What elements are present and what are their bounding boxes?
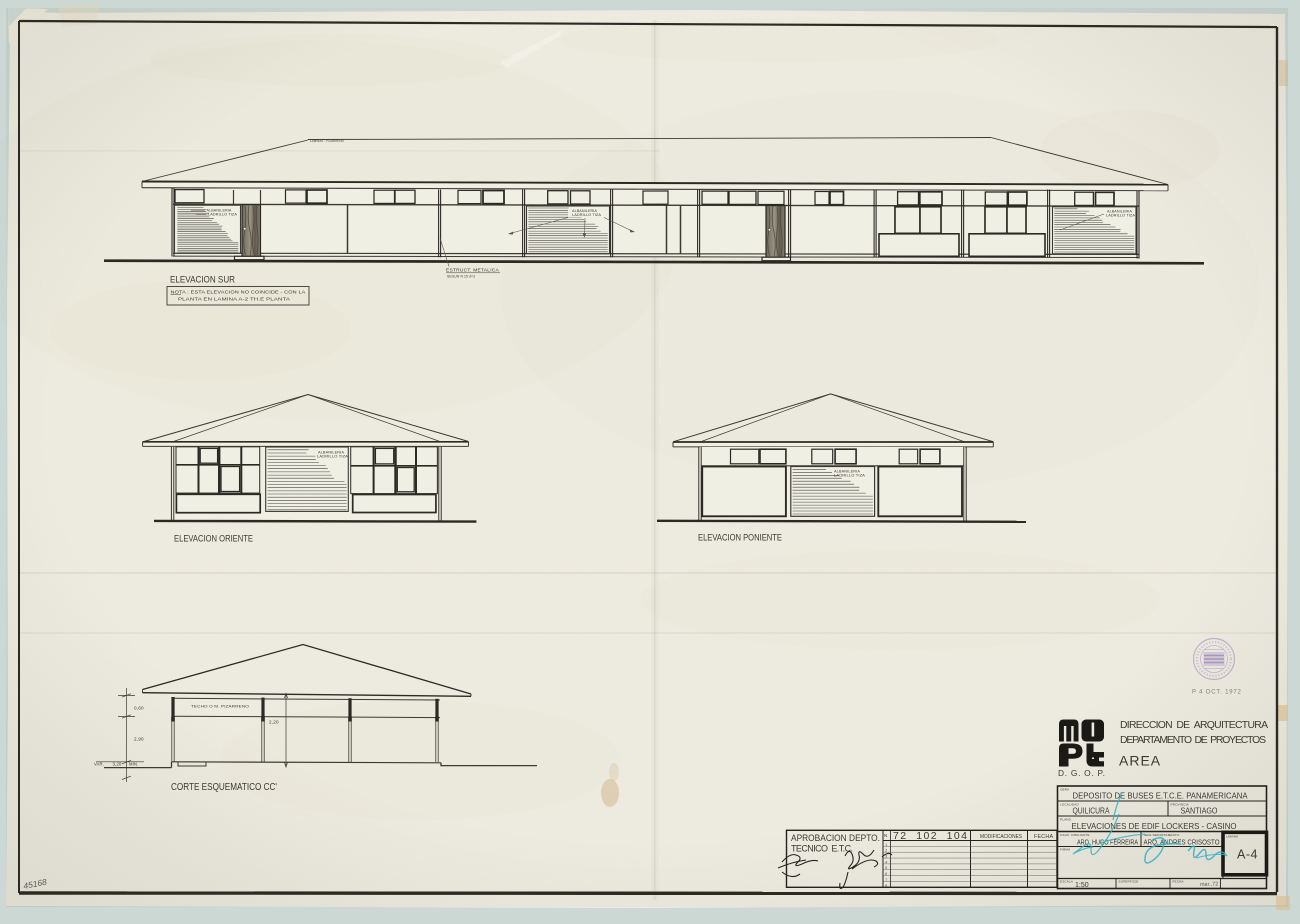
svg-text:SANTIAGO: SANTIAGO <box>1181 807 1218 816</box>
svg-text:7: 7 <box>885 878 887 882</box>
svg-text:TECHO O M. PIZARRENO: TECHO O M. PIZARRENO <box>191 705 249 709</box>
svg-text:ELEVACIONES DE EDIF LOCKERS -: ELEVACIONES DE EDIF LOCKERS - CASINO <box>1072 822 1237 831</box>
svg-text:1: 1 <box>885 843 887 847</box>
svg-text:SEGUN N 15 d=3: SEGUN N 15 d=3 <box>447 274 475 278</box>
svg-text:6: 6 <box>885 872 887 876</box>
svg-text:P 4 OCT. 1972: P 4 OCT. 1972 <box>1192 690 1242 696</box>
svg-text:0,60: 0,60 <box>134 706 144 711</box>
svg-text:SUPERFICIE: SUPERFICIE <box>1119 880 1139 884</box>
svg-text:72 102 104: 72 102 104 <box>893 830 967 842</box>
svg-text:N: N <box>884 833 887 838</box>
svg-text:QUILICURA: QUILICURA <box>1073 807 1111 816</box>
svg-text:MIN.: MIN. <box>129 762 138 767</box>
svg-text:ELEVACION ORIENTE: ELEVACION ORIENTE <box>174 534 253 545</box>
svg-text:VAR.: VAR. <box>94 762 104 767</box>
svg-text:8: 8 <box>885 884 887 888</box>
svg-text:JEFE DEPARTAMENTO: JEFE DEPARTAMENTO <box>1144 833 1180 837</box>
svg-text:2,20: 2,20 <box>269 720 279 725</box>
svg-text:2: 2 <box>885 849 887 853</box>
svg-text:3: 3 <box>885 855 887 859</box>
svg-text:LADRILLO TIZA: LADRILLO TIZA <box>572 213 602 217</box>
svg-text:mar..72: mar..72 <box>1200 881 1219 888</box>
svg-text:FECHA: FECHA <box>1173 880 1184 884</box>
svg-text:LADRILLO TIZA: LADRILLO TIZA <box>208 213 238 217</box>
svg-text:5: 5 <box>885 866 887 870</box>
svg-text:4: 4 <box>885 860 887 864</box>
svg-text:DEPOSITO DE BUSES E.T.C.E. PAN: DEPOSITO DE BUSES E.T.C.E. PANAMERICANA <box>1073 792 1249 801</box>
svg-text:DIRECCION DE ARQUITECTURA: DIRECCION DE ARQUITECTURA <box>1120 720 1268 731</box>
svg-text:D. G. O. P.: D. G. O. P. <box>1058 768 1105 778</box>
svg-text:APROBACION DEPTO.: APROBACION DEPTO. <box>791 833 880 843</box>
svg-text:PLANO: PLANO <box>1060 818 1072 822</box>
svg-text:TECNICO E.T.C.: TECNICO E.T.C. <box>791 844 853 854</box>
svg-text:LADRILLO TIZA: LADRILLO TIZA <box>1106 214 1136 218</box>
svg-text:CALIF. DIBUJANTE: CALIF. DIBUJANTE <box>1060 833 1090 837</box>
svg-text:LAMINA: LAMINA <box>1226 835 1238 839</box>
svg-text:DEPARTAMENTO DE PROYECTOS: DEPARTAMENTO DE PROYECTOS <box>1120 735 1266 746</box>
svg-text:LADRILLO TIZA: LADRILLO TIZA <box>834 474 866 478</box>
svg-text:AREA: AREA <box>1119 753 1161 769</box>
svg-text:FECHA: FECHA <box>1034 834 1053 840</box>
svg-text:NOTA : ESTA ELEVACION NO CO: NOTA : ESTA ELEVACION NO COINCIDE - CON … <box>171 290 306 295</box>
svg-text:2,90: 2,90 <box>134 737 144 742</box>
svg-text:ELEVACION PONIENTE: ELEVACION PONIENTE <box>698 533 782 544</box>
svg-text:A-4: A-4 <box>1237 848 1258 862</box>
svg-text:3,20: 3,20 <box>113 762 122 767</box>
svg-text:LAMINAS - PIZARRENO: LAMINAS - PIZARRENO <box>310 139 344 143</box>
svg-text:MODIFICACIONES: MODIFICACIONES <box>980 834 1023 840</box>
svg-text:OBRA: OBRA <box>1060 788 1069 792</box>
svg-text:LADRILLO TIZA: LADRILLO TIZA <box>317 455 349 459</box>
svg-text:PLANTA EN LAMINA A-2 TH.E: PLANTA EN LAMINA A-2 TH.E PLANTA <box>178 297 290 302</box>
svg-text:CORTE ESQUEMATICO CC': CORTE ESQUEMATICO CC' <box>171 782 277 793</box>
svg-text:FIRMA: FIRMA <box>1060 848 1070 852</box>
svg-text:ESTRUCT. METALICA: ESTRUCT. METALICA <box>446 268 499 273</box>
svg-text:ESCALA: ESCALA <box>1060 880 1073 884</box>
svg-text:1:50: 1:50 <box>1075 882 1089 889</box>
svg-text:ELEVACION SUR: ELEVACION SUR <box>170 275 235 286</box>
